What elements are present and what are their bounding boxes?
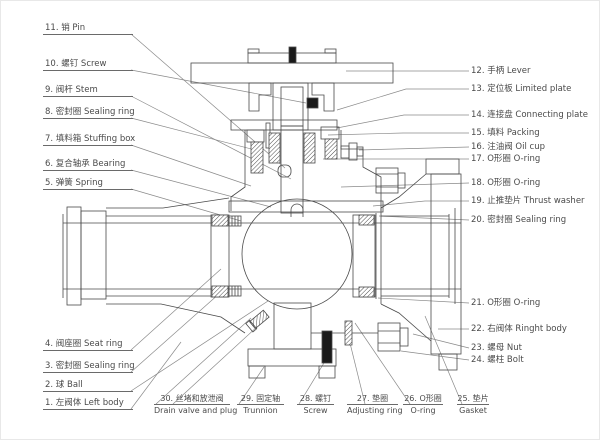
label-line-zh: 29. 固定轴 <box>237 393 284 405</box>
ball-valve-diagram: 11. 销 Pin 10. 螺钉 Screw 9. 阀杆 Stem 8. 密封圈… <box>0 0 600 440</box>
seat-ring-right <box>353 215 375 297</box>
ball <box>242 199 352 309</box>
label-sealing-ring-3: 3. 密封圈 Sealing ring <box>43 361 133 373</box>
label-stuffing-box: 7. 填料箱 Stuffing box <box>43 134 133 146</box>
label-screw: 10. 螺钉 Screw <box>43 59 133 71</box>
label-limited-plate: 13. 定位板 Limited plate <box>471 83 571 95</box>
label-o-ring-18: 18. O形圈 O-ring <box>471 177 540 189</box>
pin <box>289 47 296 63</box>
label-nut: 23. 螺母 Nut <box>471 342 522 354</box>
label-sealing-ring-20: 20. 密封圈 Sealing ring <box>471 214 566 226</box>
leader-lines <box>131 34 469 409</box>
adjusting-ring <box>345 321 352 345</box>
packing <box>269 133 280 163</box>
label-packing: 15. 填料 Packing <box>471 127 540 139</box>
bolt-nut-lower <box>378 323 408 351</box>
label-line-en: Gasket <box>457 405 489 416</box>
label-o-ring-17: 17. O形圈 O-ring <box>471 153 540 165</box>
label-o-ring-21: 21. O形圈 O-ring <box>471 297 540 309</box>
label-left-body: 1. 左阀体 Left body <box>43 398 133 410</box>
seat-ring-left <box>211 215 241 297</box>
label-seat-ring: 4. 阀座圈 Seat ring <box>43 339 133 351</box>
label-bearing: 6. 复合轴承 Bearing <box>43 159 133 171</box>
screw-upper <box>307 98 318 108</box>
label-line-zh: 25. 垫片 <box>457 393 489 405</box>
label-line-zh: 28. 螺钉 <box>297 393 334 405</box>
label-ball: 2. 球 Ball <box>43 380 133 392</box>
label-line-en: Drain valve and plug <box>154 405 230 416</box>
trunnion <box>248 303 378 378</box>
label-sealing-ring-8: 8. 密封圈 Sealing ring <box>43 107 133 119</box>
label-line-en: Trunnion <box>237 405 284 416</box>
label-line-en: O-ring <box>403 405 443 416</box>
label-pin: 11. 销 Pin <box>43 23 133 35</box>
packing <box>304 133 315 163</box>
label-adjusting-ring: 27. 垫圈 Adjusting ring <box>347 393 398 416</box>
label-drain-valve-and-plug: 30. 丝堵和放泄阀 Drain valve and plug <box>154 393 230 416</box>
label-connecting-plate: 14. 连接盘 Connecting plate <box>471 109 588 121</box>
label-line-zh: 26. O形圈 <box>403 393 443 405</box>
label-spring: 5. 弹簧 Spring <box>43 178 133 190</box>
oil-cup <box>341 143 363 160</box>
label-trunnion: 29. 固定轴 Trunnion <box>237 393 284 416</box>
bolt-nut-upper <box>376 168 405 193</box>
label-right-body: 22. 右阀体 Ringht body <box>471 323 567 335</box>
label-stem: 9. 阀杆 Stem <box>43 85 133 97</box>
label-line-zh: 30. 丝堵和放泄阀 <box>154 393 230 405</box>
label-lever: 12. 手柄 Lever <box>471 65 531 77</box>
label-line-en: Adjusting ring <box>347 405 398 416</box>
right-body <box>381 159 461 370</box>
label-o-ring-26: 26. O形圈 O-ring <box>403 393 443 416</box>
screw-lower <box>322 331 332 363</box>
label-oil-cup: 16. 注油阀 Oil cup <box>471 141 545 153</box>
label-screw-28: 28. 螺钉 Screw <box>297 393 334 416</box>
label-line-zh: 27. 垫圈 <box>347 393 398 405</box>
label-line-en: Screw <box>297 405 334 416</box>
label-bolt: 24. 螺柱 Bolt <box>471 354 524 366</box>
drain-plug <box>246 309 270 332</box>
label-gasket: 25. 垫片 Gasket <box>457 393 489 416</box>
label-thrust-washer: 19. 止推垫片 Thrust washer <box>471 195 585 207</box>
